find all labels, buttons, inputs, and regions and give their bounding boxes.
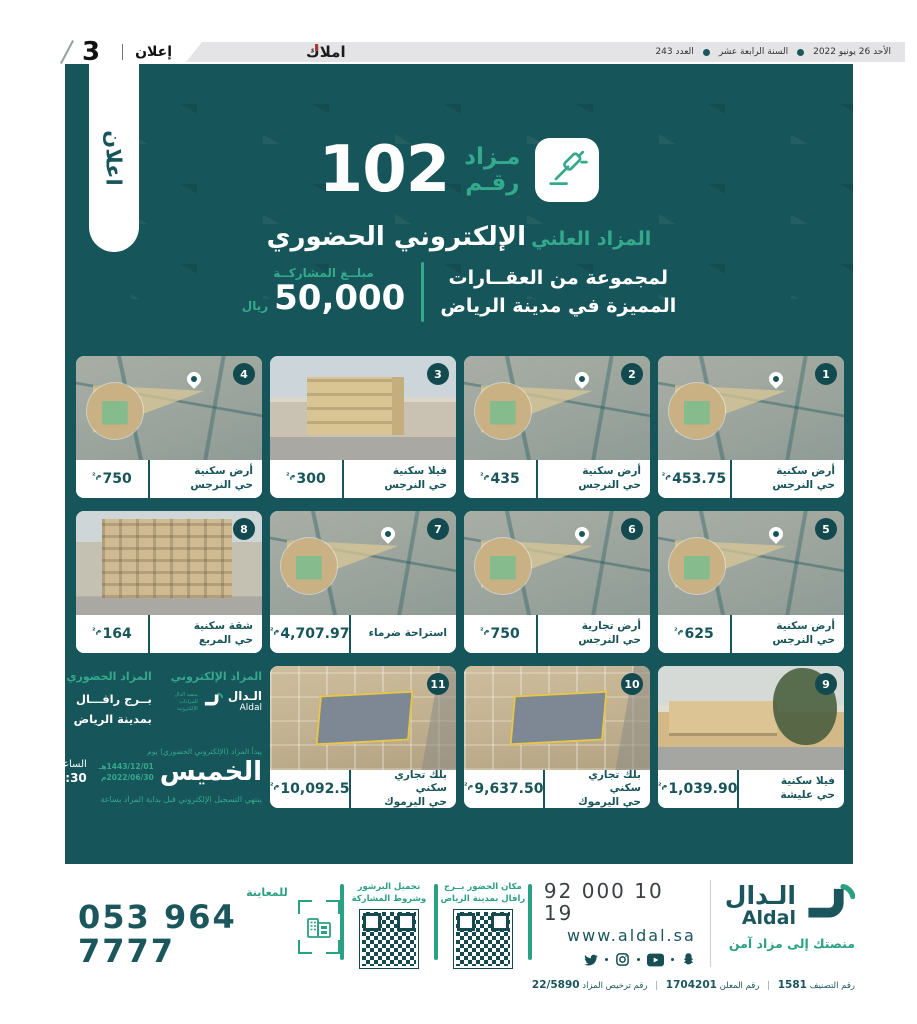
- card-number-badge: 9: [815, 673, 837, 695]
- time-label: الساعة: [40, 759, 87, 772]
- property-aerial-image: 11: [270, 666, 456, 770]
- ad-panel: اعلان مـزاد رقـم 102 المزاد العلني الإلك…: [65, 64, 853, 864]
- ad-ribbon-label: اعلان: [102, 130, 126, 185]
- property-type: بلك تجاري سكني: [360, 769, 447, 796]
- property-aerial-image: 10: [464, 666, 650, 770]
- card-number-badge: 7: [427, 518, 449, 540]
- registration-note: ينتهي التسجيل الإلكتروني قبل بداية المزا…: [76, 795, 262, 804]
- currency-label: ريال: [242, 299, 268, 318]
- auction-description: لمجموعة من العقــارات المميزة في مدينة ا…: [440, 264, 676, 321]
- property-type: أرض تجارية: [547, 620, 641, 634]
- caption-divider: [349, 770, 351, 808]
- property-district: حي النرجس: [741, 479, 835, 493]
- area-unit: م²: [658, 770, 667, 790]
- card-caption: أرض سكنية حي النرجس 453.75 م²: [658, 460, 844, 498]
- green-divider-bar: [434, 884, 438, 960]
- card-caption: فيلا سكنية حي النرجس 300 م²: [270, 460, 456, 498]
- auction-number-word: رقـم: [464, 170, 520, 196]
- website-link[interactable]: www.aldal.sa: [567, 926, 696, 945]
- classification-label: رقم التصنيف: [810, 981, 855, 991]
- qr-code-location[interactable]: [454, 910, 512, 968]
- property-area: 750: [491, 626, 520, 642]
- qr-section: مكان الحضور بــرج رافال بمدينة الرياض تح…: [340, 882, 532, 968]
- aldal-mark-icon: [202, 690, 224, 714]
- building-scan-icon: [298, 900, 340, 954]
- property-card-3: 3 فيلا سكنية حي النرجس 300 م²: [270, 356, 456, 498]
- card-caption: شقة سكنية حي المربع 164 م²: [76, 615, 262, 653]
- card-number-badge: 6: [621, 518, 643, 540]
- caption-divider: [730, 615, 732, 653]
- platform-note: منصة الدال للمزادات الإلكترونية: [168, 692, 198, 713]
- issue-info: الأحد 26 يونيو 2022 السنة الرابعة عشر ال…: [655, 47, 891, 57]
- separator-dot-icon: [671, 958, 674, 961]
- topbar-divider: [122, 44, 123, 60]
- caption-divider: [342, 460, 344, 498]
- area-unit: م²: [270, 770, 279, 790]
- onsite-auction-title: المزاد الحضوري: [66, 670, 151, 683]
- property-area: 435: [491, 471, 520, 487]
- property-photo-image: 3: [270, 356, 456, 460]
- description-line-2: المميزة في مدينة الرياض: [440, 292, 676, 321]
- card-caption: أرض تجارية حي النرجس 750 م²: [464, 615, 650, 653]
- electronic-auction-title: المزاد الإلكتروني: [168, 670, 262, 683]
- brand-name-en: Aldal: [228, 704, 262, 714]
- qr-brochure-block: تحميل البرشور وشروط المشاركة: [353, 882, 425, 968]
- header-divider: [421, 262, 424, 322]
- unified-phone-number[interactable]: 92 000 10 19: [544, 880, 696, 924]
- advertiser-value: 1704201: [666, 979, 717, 991]
- separator-dot-icon: [637, 958, 640, 961]
- time-value: 04:30م: [40, 771, 87, 786]
- caption-divider: [536, 615, 538, 653]
- property-area: 300: [297, 471, 326, 487]
- property-area: 10,092.5: [280, 781, 349, 797]
- property-grid: 1 أرض سكنية حي النرجس 453.75 م²: [65, 356, 853, 816]
- twitter-icon[interactable]: [583, 952, 598, 967]
- card-number-badge: 11: [427, 673, 449, 695]
- property-district: حي النرجس: [741, 634, 835, 648]
- property-photo-image: 8: [76, 511, 262, 615]
- paper-name: املاك: [306, 43, 346, 61]
- classification-value: 1581: [778, 979, 807, 991]
- location-pin-icon: [766, 369, 786, 389]
- corner-slash: [60, 40, 74, 64]
- separator: |: [767, 981, 770, 991]
- property-card-11: 11 بلك تجاري سكني حي اليرموك 10,092.5 م²: [270, 666, 456, 808]
- auction-date-row: الخميس 1443/12/01هـ 2022/06/30م الساعة 0…: [76, 758, 262, 787]
- location-pin-icon: [766, 524, 786, 544]
- property-map-image: 6: [464, 511, 650, 615]
- license-value: 22/5890: [532, 979, 580, 991]
- location-pin-icon: [184, 369, 204, 389]
- advertiser-label: رقم المعلن: [720, 981, 760, 991]
- property-card-1: 1 أرض سكنية حي النرجس 453.75 م²: [658, 356, 844, 498]
- issue-date: الأحد 26 يونيو 2022: [813, 47, 891, 57]
- property-card-6: 6 أرض تجارية حي النرجس 750 م²: [464, 511, 650, 653]
- grid-row-3: 9 فيلا سكنية حي عليشة 1,039.90 م²: [74, 666, 844, 816]
- venue-name: بــرج رافـــال: [66, 690, 151, 710]
- property-area: 9,637.50: [474, 781, 543, 797]
- youtube-icon[interactable]: [647, 953, 664, 967]
- brand-name-ar: الـدال: [725, 883, 796, 909]
- aldal-mini-logo: الـدال Aldal منصة الدال للمزادات الإلكتر…: [168, 690, 262, 714]
- property-card-9: 9 فيلا سكنية حي عليشة 1,039.90 م²: [658, 666, 844, 808]
- property-map-image: 7: [270, 511, 456, 615]
- separator: |: [655, 981, 658, 991]
- location-pin-icon: [572, 369, 592, 389]
- auction-public-label: المزاد العلني: [531, 228, 651, 250]
- card-number-badge: 10: [621, 673, 643, 695]
- property-card-8: 8 شقة سكنية حي المربع 164 م²: [76, 511, 262, 653]
- property-area: 625: [685, 626, 714, 642]
- property-type: أرض سكنية: [547, 465, 641, 479]
- caption-divider: [148, 615, 150, 653]
- page-number: 3: [82, 40, 100, 64]
- property-area: 750: [103, 471, 132, 487]
- qr-location-label-1: مكان الحضور بــرج: [441, 882, 526, 894]
- auction-day: الخميس: [160, 758, 262, 787]
- property-district: حي النرجس: [353, 479, 447, 493]
- separator-dot-icon: [605, 958, 608, 961]
- auction-header: مـزاد رقـم 102 المزاد العلني الإلكتروني …: [65, 64, 853, 322]
- card-number-badge: 5: [815, 518, 837, 540]
- property-card-10: 10 بلك تجاري سكني حي اليرموك 9,637.50 م²: [464, 666, 650, 808]
- issue-number: العدد 243: [655, 47, 693, 57]
- property-type: فيلا سكنية: [748, 775, 835, 789]
- venue-city: بمدينة الرياض: [66, 710, 151, 730]
- card-caption: بلك تجاري سكني حي اليرموك 10,092.5 م²: [270, 770, 456, 808]
- area-unit: م²: [674, 615, 683, 635]
- property-district: حي النرجس: [547, 634, 641, 648]
- property-photo-image: 9: [658, 666, 844, 770]
- auction-start-note: يبدأ المزاد (الإلكتروني الحضوري) يوم: [76, 747, 262, 756]
- registration-numbers-line: رقم التصنيف 1581 | رقم المعلن 1704201 | …: [532, 979, 855, 991]
- green-divider-bar: [340, 884, 344, 960]
- grid-row-2: 5 أرض سكنية حي النرجس 625 م²: [74, 511, 844, 653]
- card-caption: أرض سكنية حي النرجس 625 م²: [658, 615, 844, 653]
- card-caption: أرض سكنية حي النرجس 750 م²: [76, 460, 262, 498]
- card-number-badge: 3: [427, 363, 449, 385]
- separator-dot-icon: [797, 49, 804, 56]
- inspection-block: للمعاينة 053 964 7777: [78, 886, 340, 968]
- aldal-mark-icon: [803, 880, 855, 932]
- property-card-5: 5 أرض سكنية حي النرجس 625 م²: [658, 511, 844, 653]
- inspection-phone-number[interactable]: 053 964 7777: [78, 901, 288, 968]
- electronic-auction-column: المزاد الإلكتروني الـدال Aldal: [168, 670, 262, 738]
- auction-info-block: المزاد الإلكتروني الـدال Aldal: [76, 666, 262, 816]
- area-unit: م²: [480, 460, 489, 480]
- qr-brochure-label-1: تحميل البرشور: [352, 882, 427, 894]
- snapchat-icon[interactable]: [681, 952, 696, 967]
- property-type: استراحة ضرماء: [360, 627, 447, 641]
- auction-word: مـزاد: [464, 144, 520, 170]
- property-type: فيلا سكنية: [353, 465, 447, 479]
- newspaper-topbar: 3 إعلان املاك الأحد 26 يونيو 2022 السنة …: [66, 40, 905, 64]
- auction-type-label: الإلكتروني الحضوري: [267, 222, 526, 252]
- property-map-image: 4: [76, 356, 262, 460]
- qr-brochure-label-2: وشروط المشاركة: [352, 894, 427, 906]
- property-district: حي اليرموك: [360, 796, 447, 808]
- description-line-1: لمجموعة من العقــارات: [440, 264, 676, 293]
- instagram-icon[interactable]: [615, 952, 630, 967]
- caption-divider: [536, 460, 538, 498]
- property-area: 453.75: [672, 471, 726, 487]
- property-district: حي عليشة: [748, 789, 835, 803]
- caption-divider: [148, 460, 150, 498]
- caption-divider: [737, 770, 739, 808]
- license-label: رقم ترخيص المزاد: [582, 981, 647, 991]
- property-district: حي المربع: [159, 634, 253, 648]
- footer: الـدال Aldal منصتك إلى مزاد آمن 92 000 1…: [78, 880, 855, 991]
- property-district: حي النرجس: [159, 479, 253, 493]
- property-map-image: 5: [658, 511, 844, 615]
- green-divider-bar: [528, 884, 532, 960]
- brand-name-en: Aldal: [725, 909, 796, 929]
- area-unit: م²: [92, 615, 101, 635]
- card-caption: استراحة ضرماء 4,707.97 م²: [270, 615, 456, 653]
- card-number-badge: 8: [233, 518, 255, 540]
- section-label: إعلان: [135, 44, 172, 60]
- property-type: أرض سكنية: [741, 465, 835, 479]
- area-unit: م²: [92, 460, 101, 480]
- qr-code-brochure[interactable]: [360, 910, 418, 968]
- location-pin-icon: [572, 524, 592, 544]
- separator-dot-icon: [703, 49, 710, 56]
- card-caption: بلك تجاري سكني حي اليرموك 9,637.50 م²: [464, 770, 650, 808]
- social-icons-row: [583, 952, 696, 967]
- area-unit: م²: [480, 615, 489, 635]
- contact-block: 92 000 10 19 www.aldal.sa: [532, 880, 711, 967]
- qr-location-block: مكان الحضور بــرج رافال بمدينة الرياض: [447, 882, 519, 968]
- topbar-strip: املاك الأحد 26 يونيو 2022 السنة الرابعة …: [186, 42, 905, 62]
- issue-year: السنة الرابعة عشر: [719, 47, 788, 57]
- participation-amount: 50,000: [274, 280, 405, 317]
- card-number-badge: 4: [233, 363, 255, 385]
- auction-date-hijri: 1443/12/01هـ: [99, 761, 154, 772]
- participation-amount-block: مبلــغ المشاركــة 50,000 ريال: [242, 266, 406, 317]
- auction-subtitle: المزاد العلني الإلكتروني الحضوري: [267, 222, 652, 252]
- brand-tagline: منصتك إلى مزاد آمن: [725, 936, 855, 951]
- grid-row-1: 1 أرض سكنية حي النرجس 453.75 م²: [74, 356, 844, 498]
- onsite-auction-column: المزاد الحضوري بــرج رافـــال بمدينة الر…: [66, 670, 151, 738]
- area-unit: م²: [662, 460, 671, 480]
- property-map-image: 2: [464, 356, 650, 460]
- property-card-4: 4 أرض سكنية حي النرجس 750 م²: [76, 356, 262, 498]
- card-number-badge: 1: [815, 363, 837, 385]
- area-unit: م²: [286, 460, 295, 480]
- inspection-label: للمعاينة: [246, 886, 288, 899]
- location-pin-icon: [378, 524, 398, 544]
- qr-location-label-2: رافال بمدينة الرياض: [441, 894, 526, 906]
- property-district: حي النرجس: [547, 479, 641, 493]
- aldal-logo: الـدال Aldal منصتك إلى مزاد آمن: [725, 880, 855, 951]
- property-type: أرض سكنية: [741, 620, 835, 634]
- caption-divider: [730, 460, 732, 498]
- area-unit: م²: [464, 770, 473, 790]
- property-area: 164: [103, 626, 132, 642]
- auction-number: 102: [319, 138, 450, 202]
- property-type: أرض سكنية: [159, 465, 253, 479]
- property-card-7: 7 استراحة ضرماء 4,707.97 م²: [270, 511, 456, 653]
- property-area: 4,707.97: [280, 626, 349, 642]
- property-type: شقة سكنية: [159, 620, 253, 634]
- property-map-image: 1: [658, 356, 844, 460]
- area-unit: م²: [270, 615, 279, 635]
- property-card-2: 2 أرض سكنية حي النرجس 435 م²: [464, 356, 650, 498]
- property-area: 1,039.90: [668, 781, 737, 797]
- paper-logo: املاك: [306, 43, 346, 61]
- property-type: بلك تجاري سكني: [554, 769, 641, 796]
- caption-divider: [543, 770, 545, 808]
- card-caption: أرض سكنية حي النرجس 435 م²: [464, 460, 650, 498]
- brand-name-ar: الـدال: [228, 690, 262, 703]
- auction-date-gregorian: 2022/06/30م: [99, 772, 154, 783]
- property-district: حي اليرموك: [554, 796, 641, 808]
- card-caption: فيلا سكنية حي عليشة 1,039.90 م²: [658, 770, 844, 808]
- ad-ribbon: اعلان: [89, 64, 139, 252]
- caption-divider: [349, 615, 351, 653]
- card-number-badge: 2: [621, 363, 643, 385]
- paper-logo-red-accent: [315, 44, 318, 51]
- gavel-icon: [535, 138, 599, 202]
